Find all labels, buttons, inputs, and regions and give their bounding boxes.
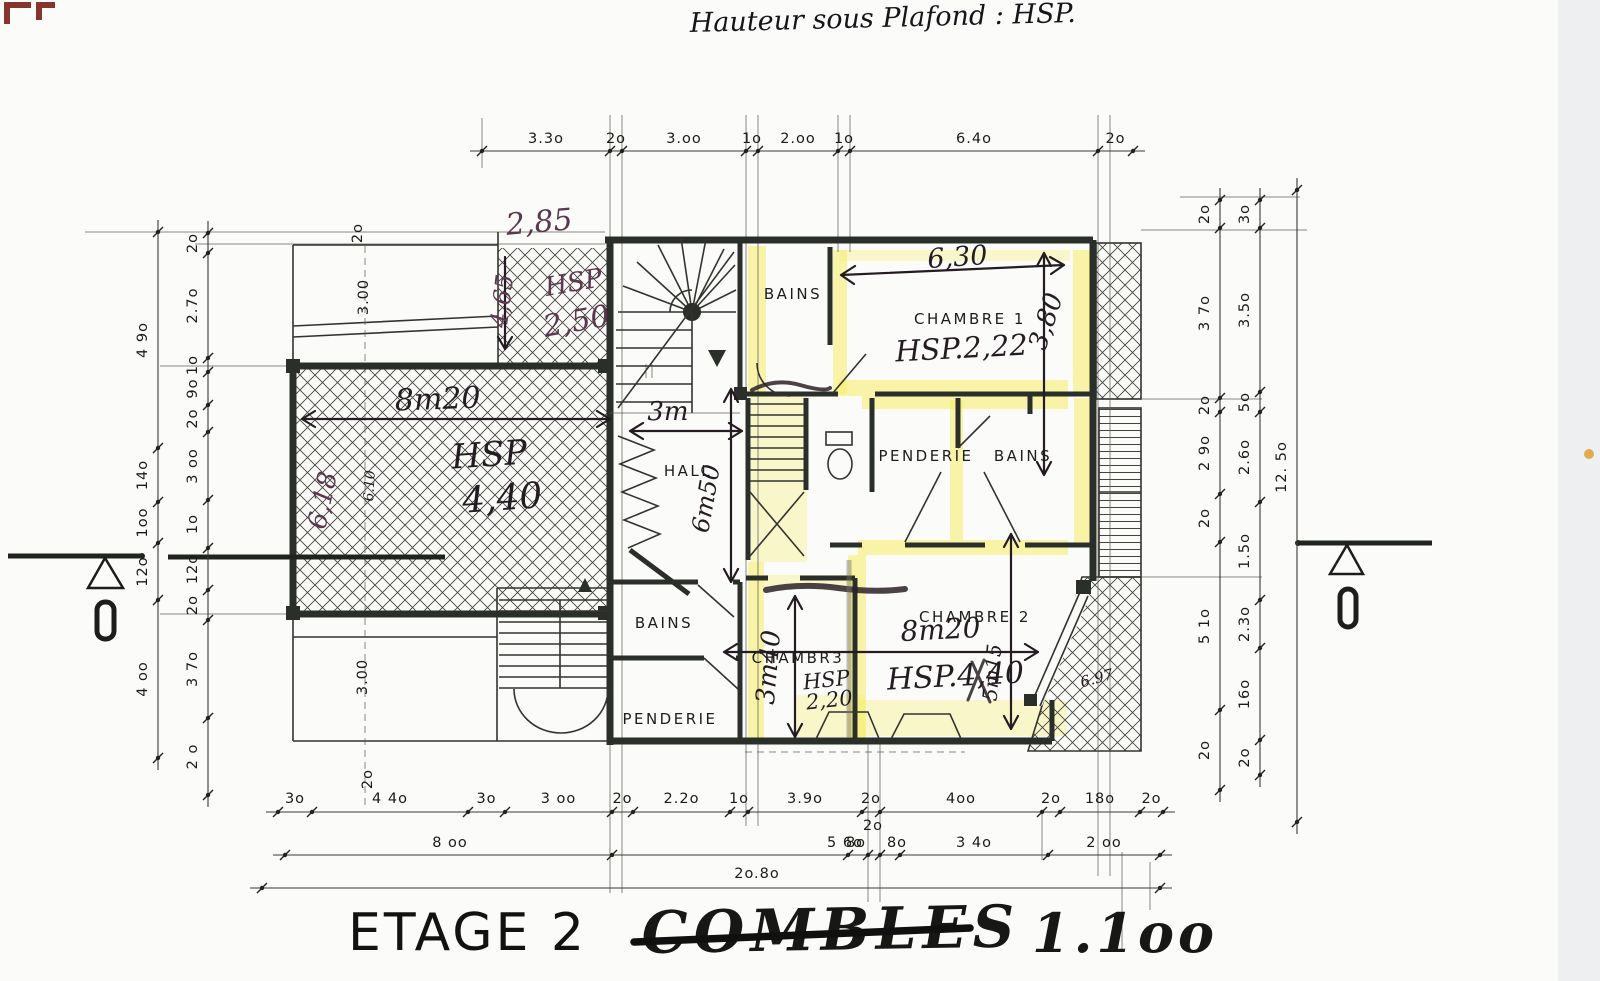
dim-label: 12. 5o: [1274, 441, 1290, 493]
dim-label: 2.3o: [1237, 606, 1253, 642]
dim-label: 2o: [350, 223, 366, 243]
dim-label: 8o: [846, 835, 866, 851]
dim-label: 1o: [185, 355, 201, 375]
dim-label: 8 oo: [432, 835, 468, 851]
dim-label: 2o: [1237, 747, 1253, 767]
dim-label: 2o: [861, 791, 881, 807]
dim-label: 16o: [1237, 679, 1253, 709]
dim-label: 14o: [135, 460, 151, 490]
dim-label: 2o: [360, 769, 376, 789]
dim-label: 3 7o: [185, 651, 201, 687]
dim-label: 2.2o: [664, 791, 700, 807]
dim-label: 2o.8o: [734, 866, 780, 882]
dim-label: 2.7o: [185, 288, 201, 324]
room-label: BAINS: [635, 614, 693, 632]
dim-label: 9o: [185, 378, 201, 398]
dim-label: 3 oo: [541, 791, 577, 807]
room-label: CHAMBRE 1: [914, 310, 1026, 328]
edge-dot-orange: [1584, 449, 1594, 459]
room-label: PENDERIE: [878, 447, 973, 465]
dim-label: 2o: [606, 131, 626, 147]
hand-annotation: 2,20: [804, 686, 854, 715]
dim-label: 3o: [285, 791, 305, 807]
dim-label: 5 1o: [1197, 608, 1213, 644]
dim-label: 2.oo: [780, 131, 816, 147]
hand-annotation: 3m: [647, 397, 688, 427]
room-label: BAINS: [764, 285, 822, 303]
dim-label: 3.9o: [787, 791, 823, 807]
dim-label: 3.3o: [528, 131, 564, 147]
dim-label: 2o: [612, 791, 632, 807]
dim-label: 2o: [1041, 791, 1061, 807]
dim-label: 3.00: [356, 279, 372, 315]
dim-label: 3o: [1237, 204, 1253, 224]
dim-label: 1o: [834, 131, 854, 147]
dim-label: 1o: [729, 791, 749, 807]
dim-label: 2o: [863, 818, 883, 834]
floorplan-canvas: Hauteur sous Plafond : HSP. ETAGE 2 COMB…: [0, 0, 1600, 981]
hand-annotation: 6.10: [361, 470, 379, 502]
dim-label: 4 9o: [135, 322, 151, 358]
dim-label: 4 oo: [135, 661, 151, 697]
dim-label: 6.4o: [956, 131, 992, 147]
dim-label: 2.6o: [1237, 439, 1253, 475]
dim-label: 2 o: [185, 744, 201, 770]
dim-label: 8o: [887, 835, 907, 851]
dim-label: 5o: [1237, 392, 1253, 412]
dim-label: 2o: [1105, 131, 1125, 147]
dim-label: 3.5o: [1237, 292, 1253, 328]
hand-annotation: 5m15: [978, 643, 1007, 702]
dim-label: 4oo: [946, 791, 976, 807]
dim-label: 12o: [135, 556, 151, 586]
dim-label: 12o: [185, 554, 201, 584]
dim-label: 2 oo: [1086, 835, 1122, 851]
dim-label: 4 4o: [372, 791, 408, 807]
dim-label: 2o: [185, 233, 201, 253]
dim-label: 2o: [1197, 740, 1213, 760]
dim-label: 1.5o: [1237, 533, 1253, 569]
dim-label: 2o: [185, 408, 201, 428]
dim-label: 2o: [1141, 791, 1161, 807]
dim-label: 2o: [1197, 395, 1213, 415]
room-label: BAINS: [994, 447, 1052, 465]
hand-annotation: HSP.2,22: [893, 328, 1028, 369]
dim-label: 2o: [185, 595, 201, 615]
room-label: PENDERIE: [622, 710, 717, 728]
hand-annotation: 8m20: [900, 611, 982, 648]
dim-label: 3 7o: [1197, 295, 1213, 331]
dim-label: 3 oo: [185, 448, 201, 484]
floor-title: ETAGE 2: [348, 903, 587, 963]
hand-annotation: 2,85: [503, 202, 574, 243]
dim-label: 2 9o: [1197, 435, 1213, 471]
hand-annotation: 6,30: [926, 240, 988, 275]
dim-label: 3o: [476, 791, 496, 807]
dim-label: 2o: [1197, 204, 1213, 224]
dim-label: 1o: [185, 514, 201, 534]
scanned-floorplan-page: Hauteur sous Plafond : HSP. ETAGE 2 COMB…: [0, 0, 1600, 981]
dim-label: 1oo: [135, 508, 151, 538]
scan-edge-shadow: [1558, 0, 1600, 981]
dim-label: 3.oo: [666, 131, 702, 147]
hand-annotation: 8m20: [394, 381, 481, 419]
dim-label: 2o: [1197, 508, 1213, 528]
hand-annotation: HSP: [449, 432, 530, 477]
dim-label: 18o: [1085, 791, 1115, 807]
dim-label: 1o: [742, 131, 762, 147]
hand-annotation: 4,40: [460, 475, 544, 522]
dim-label: 3.00: [355, 659, 371, 695]
drawing-scale: 1.1oo: [1032, 901, 1218, 965]
dim-label: 3 4o: [956, 835, 992, 851]
